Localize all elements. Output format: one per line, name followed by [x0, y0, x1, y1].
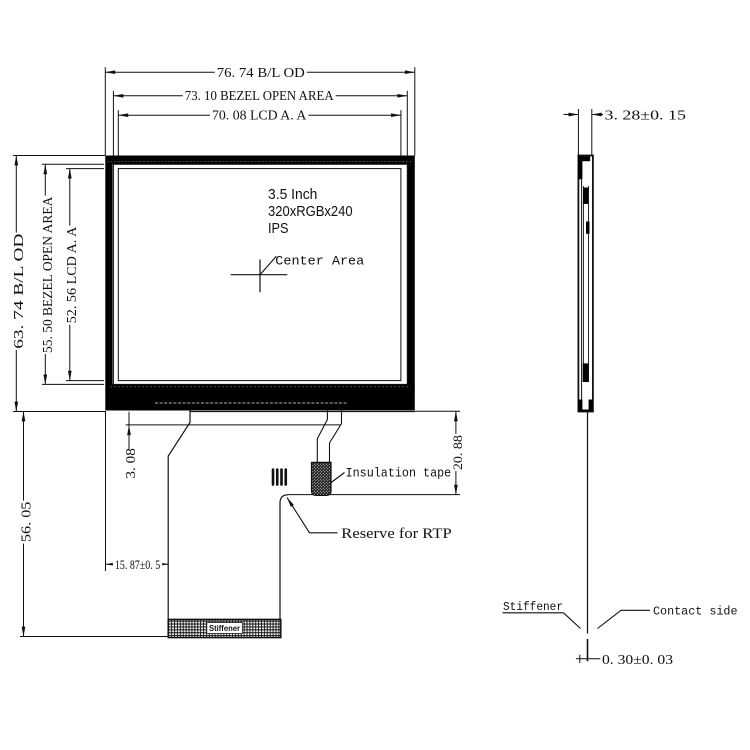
svg-text:Insulation tape: Insulation tape [346, 466, 452, 480]
svg-text:76. 74 B/L OD: 76. 74 B/L OD [217, 66, 305, 81]
svg-text:Center Area: Center Area [275, 253, 364, 268]
svg-text:Reserve for RTP: Reserve for RTP [341, 526, 451, 542]
svg-text:Contact side: Contact side [653, 605, 738, 619]
svg-text:Stiffener: Stiffener [503, 600, 563, 614]
svg-text:0. 30±0. 03: 0. 30±0. 03 [602, 653, 673, 668]
svg-text:70. 08 LCD A. A: 70. 08 LCD A. A [212, 108, 307, 123]
svg-text:20. 88: 20. 88 [450, 435, 465, 470]
svg-text:55. 50 BEZEL OPEN AREA: 55. 50 BEZEL OPEN AREA [41, 196, 56, 353]
svg-text:15. 87±0. 5: 15. 87±0. 5 [115, 558, 160, 572]
svg-text:63. 74 B/L OD: 63. 74 B/L OD [12, 234, 27, 349]
svg-text:3.5 Inch: 3.5 Inch [268, 187, 317, 203]
svg-text:3. 28±0. 15: 3. 28±0. 15 [605, 108, 686, 123]
svg-text:56. 05: 56. 05 [19, 502, 34, 543]
svg-text:IPS: IPS [268, 221, 289, 237]
svg-text:52. 56 LCD A. A: 52. 56 LCD A. A [65, 226, 80, 323]
svg-text:320xRGBx240: 320xRGBx240 [268, 204, 353, 220]
svg-text:73. 10 BEZEL OPEN AREA: 73. 10 BEZEL OPEN AREA [185, 89, 335, 104]
svg-text:3. 08: 3. 08 [124, 448, 139, 479]
svg-text:Stiffener: Stiffener [209, 624, 241, 633]
